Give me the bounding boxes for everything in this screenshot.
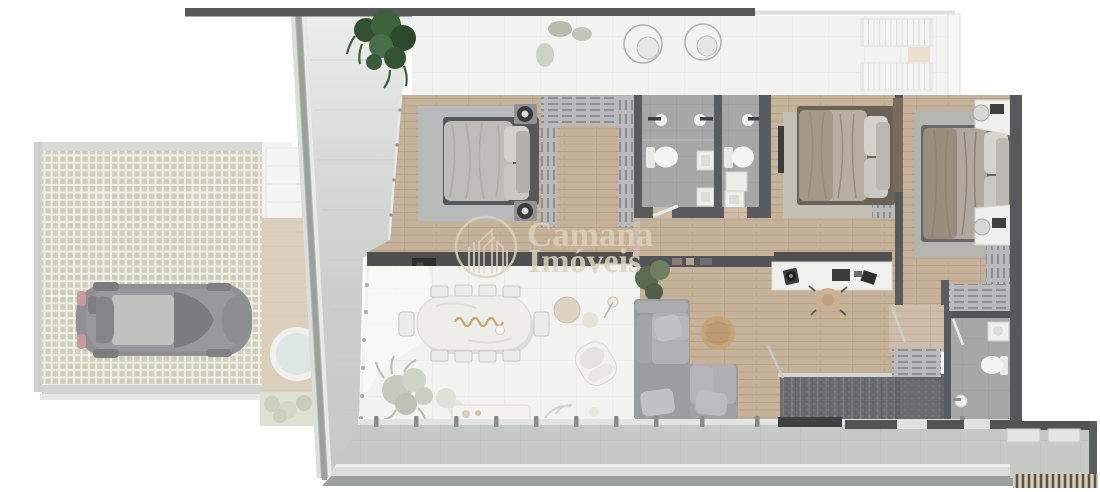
svg-text:Imóveis: Imóveis: [528, 243, 641, 280]
